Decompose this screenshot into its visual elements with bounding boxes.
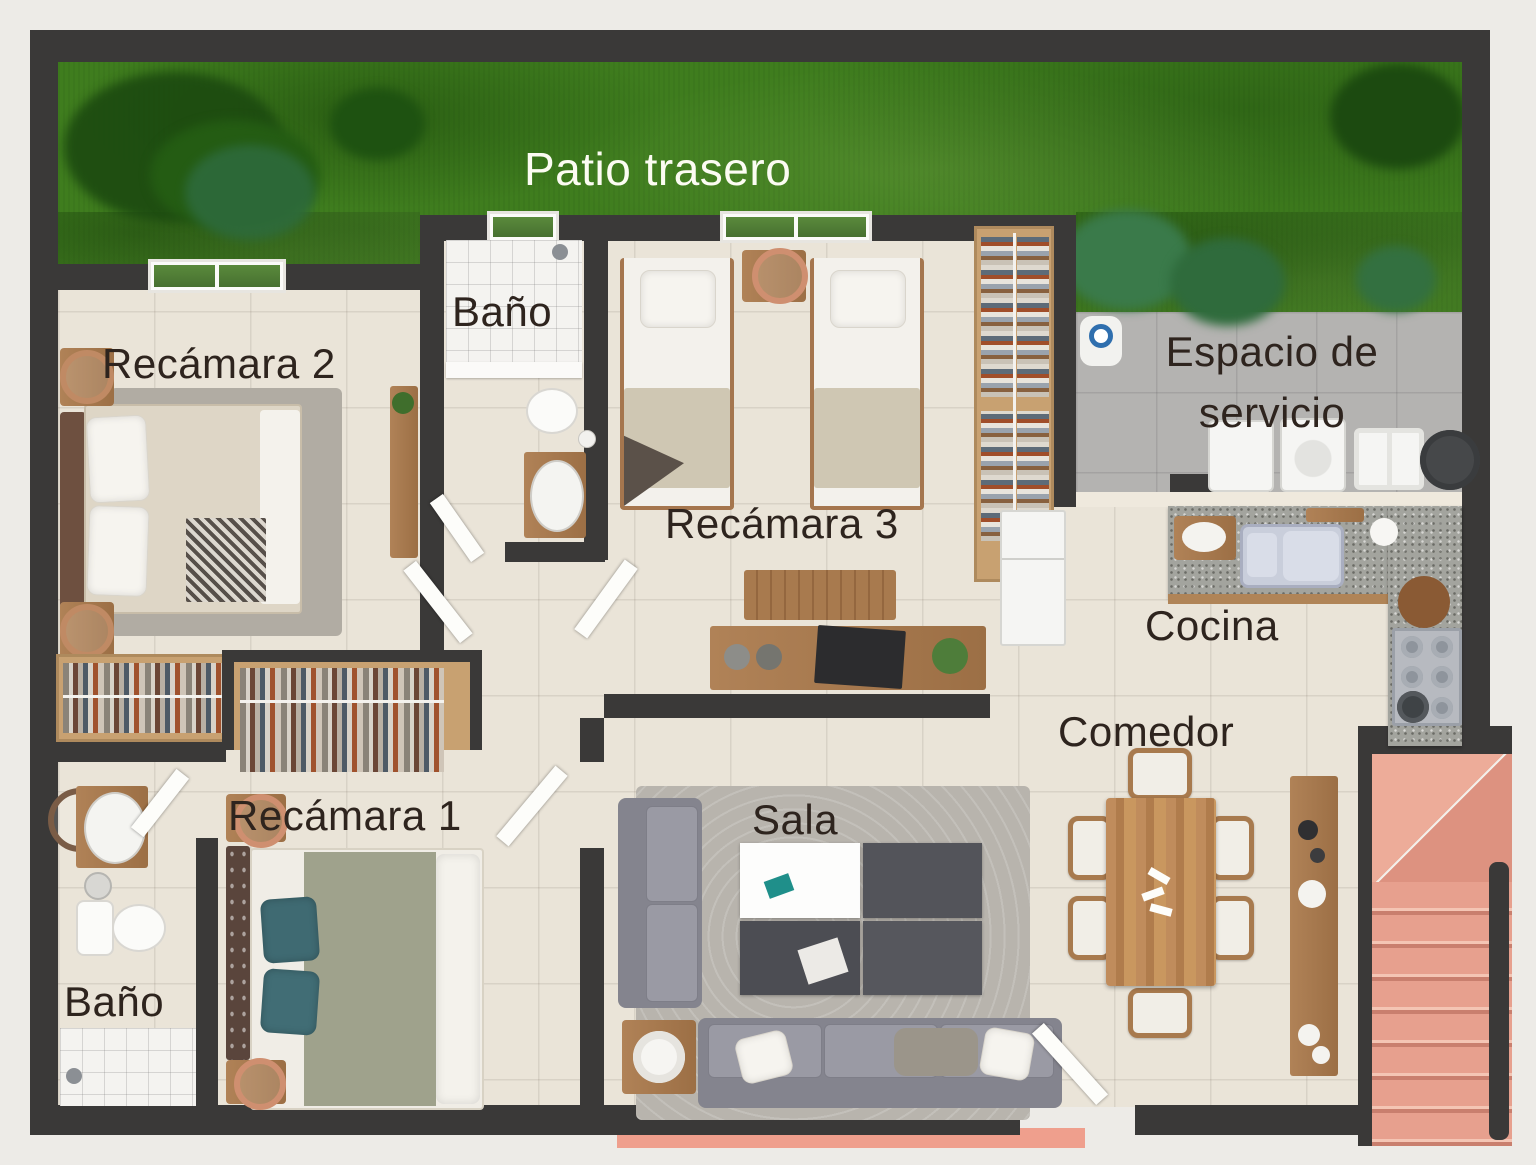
wall-stairs-left: [1358, 726, 1372, 1146]
centerpiece: [1141, 886, 1164, 901]
toilet-bowl: [112, 904, 166, 952]
outer-wall-right: [1462, 30, 1490, 726]
wall-recamara3-servicio: [1052, 215, 1076, 507]
coffee-table-module: [863, 843, 983, 918]
bed-throw-blanket: [186, 518, 266, 602]
closet-rail: [240, 700, 444, 703]
window-recamara2: [148, 259, 286, 293]
recamara1-headboard: [226, 846, 250, 1060]
window-pane: [493, 217, 553, 237]
bed-pillow-teal: [260, 968, 320, 1036]
dining-chair: [1210, 816, 1254, 880]
wall-closet-row: [30, 740, 226, 762]
sofa-pillow: [978, 1026, 1036, 1082]
sofa-vertical: [618, 798, 702, 1008]
plate: [1298, 880, 1326, 908]
nightstand-mirror: [752, 248, 808, 304]
outer-wall-bottom-right: [1135, 1105, 1360, 1135]
label-bano-top: Baño: [452, 288, 552, 336]
desk-plant: [392, 392, 414, 414]
bed-duvet-fold: [436, 854, 480, 1104]
wall-bano-recamara3: [584, 215, 608, 560]
outer-wall-left: [30, 30, 58, 1135]
palm-plant: [1170, 238, 1285, 326]
wardrobe-divider: [1013, 233, 1016, 545]
recamara2-closet: [56, 654, 230, 742]
sofa-cushion: [646, 806, 698, 902]
coffee-table-module-white: [740, 843, 860, 918]
tray: [797, 937, 848, 984]
folded-clothes: [1017, 237, 1049, 397]
stove-burner: [1401, 666, 1423, 688]
stair-handrail: [1489, 862, 1509, 1140]
round-chopping-board: [1398, 576, 1450, 628]
stair-landing: [1372, 752, 1512, 882]
bowl: [1310, 848, 1325, 863]
coffee-table-module: [863, 921, 983, 996]
label-comedor: Comedor: [1058, 708, 1234, 756]
sink-basin: [530, 460, 584, 532]
label-recamara1: Recámara 1: [228, 792, 462, 840]
palm-plant: [1356, 246, 1436, 312]
bed-blanket: [304, 852, 436, 1106]
dining-chair: [1128, 988, 1192, 1038]
label-cocina: Cocina: [1145, 602, 1279, 650]
bed-pillow-teal: [260, 896, 320, 964]
plate: [1298, 1024, 1320, 1046]
label-espacio-line2: servicio: [1199, 389, 1345, 436]
label-bano-bottom: Baño: [64, 978, 164, 1026]
book: [764, 873, 795, 899]
recamara3-bed: [810, 258, 924, 510]
dining-chair: [1210, 896, 1254, 960]
wall-recamara3-sala: [604, 694, 990, 718]
stove-burner: [1401, 636, 1423, 658]
bath-shelf: [446, 362, 582, 378]
cutting-board: [1174, 516, 1236, 560]
sideboard: [1290, 776, 1338, 1076]
trash-bin: [84, 872, 112, 900]
media-console: [710, 626, 986, 690]
table-lamp: [633, 1031, 685, 1083]
window-recamara3: [720, 211, 872, 243]
dining-table: [1106, 798, 1216, 986]
bed-pillow: [830, 270, 906, 328]
label-espacio-line1: Espacio de: [1166, 328, 1379, 375]
folded-clothes: [981, 237, 1013, 397]
speaker: [724, 644, 750, 670]
pot: [1397, 691, 1429, 723]
bed-pillow: [86, 414, 150, 503]
bed-sheet-fold: [260, 410, 300, 604]
fern: [330, 88, 425, 160]
window-pane: [726, 217, 794, 237]
window-pane: [219, 265, 280, 287]
shower-bottom: [60, 1028, 196, 1106]
nightstand-mirror: [60, 604, 114, 658]
wall-recamara1-bano: [196, 838, 218, 1105]
bed-pillow: [86, 505, 149, 597]
sink-basin-large: [1283, 531, 1339, 581]
window-bano-top: [487, 211, 559, 243]
wall-sala-recamara1: [580, 848, 604, 1107]
window-pane: [154, 265, 215, 287]
spice-board: [1306, 508, 1364, 522]
stove: [1392, 628, 1462, 726]
bowl: [1298, 820, 1318, 840]
bed-pillow: [640, 270, 716, 328]
wall-sala-recamara1-stub: [580, 718, 604, 762]
shrub: [1330, 64, 1465, 169]
wall-bano-south: [505, 542, 605, 562]
refrigerator: [1000, 510, 1066, 646]
recamara3-bed: [620, 258, 734, 510]
sofa-cushion: [646, 904, 698, 1002]
centerpiece: [1147, 867, 1170, 885]
toilet-tank: [76, 900, 114, 956]
hanging-clothes: [63, 663, 223, 733]
sofa-throw: [894, 1028, 978, 1076]
console-plant: [932, 638, 968, 674]
coffee-table: [740, 843, 982, 995]
recamara3-bench: [744, 570, 896, 620]
bed-duvet: [814, 388, 920, 488]
toilet-paper: [578, 430, 596, 448]
plate: [1182, 522, 1226, 552]
kitchen-sink: [1240, 524, 1344, 588]
stove-burner: [1431, 636, 1453, 658]
toilet-top: [526, 388, 578, 434]
side-table: [622, 1020, 696, 1094]
hanging-clothes: [240, 668, 444, 772]
closet-rail: [63, 695, 223, 698]
tv: [814, 625, 906, 689]
label-sala: Sala: [752, 796, 838, 844]
window-pane: [798, 217, 866, 237]
label-patio: Patio trasero: [524, 142, 791, 196]
plate: [1312, 1046, 1330, 1064]
fridge-door-line: [1002, 558, 1064, 560]
stove-burner: [1431, 697, 1453, 719]
label-recamara3: Recámara 3: [665, 500, 899, 548]
outer-wall-top: [30, 30, 1490, 62]
stove-burner: [1431, 666, 1453, 688]
nightstand-mirror: [234, 1058, 286, 1110]
recamara2-headboard: [60, 412, 86, 608]
sink-basin-small: [1247, 533, 1277, 577]
palm-plant: [185, 145, 315, 240]
label-espacio-servicio: Espacio de servicio: [1092, 322, 1452, 444]
centerpiece: [1149, 903, 1172, 916]
speaker: [756, 644, 782, 670]
floor-plan: Patio trasero Baño Recámara 2 Recámara 3…: [0, 0, 1536, 1165]
shower-head: [552, 244, 568, 260]
plate: [1370, 518, 1398, 546]
coffee-table-module: [740, 921, 860, 996]
label-recamara2: Recámara 2: [102, 340, 336, 388]
kitchen-wall-face: [1076, 492, 1462, 507]
shower-head: [66, 1068, 82, 1084]
sofa-horizontal: [698, 1018, 1062, 1108]
